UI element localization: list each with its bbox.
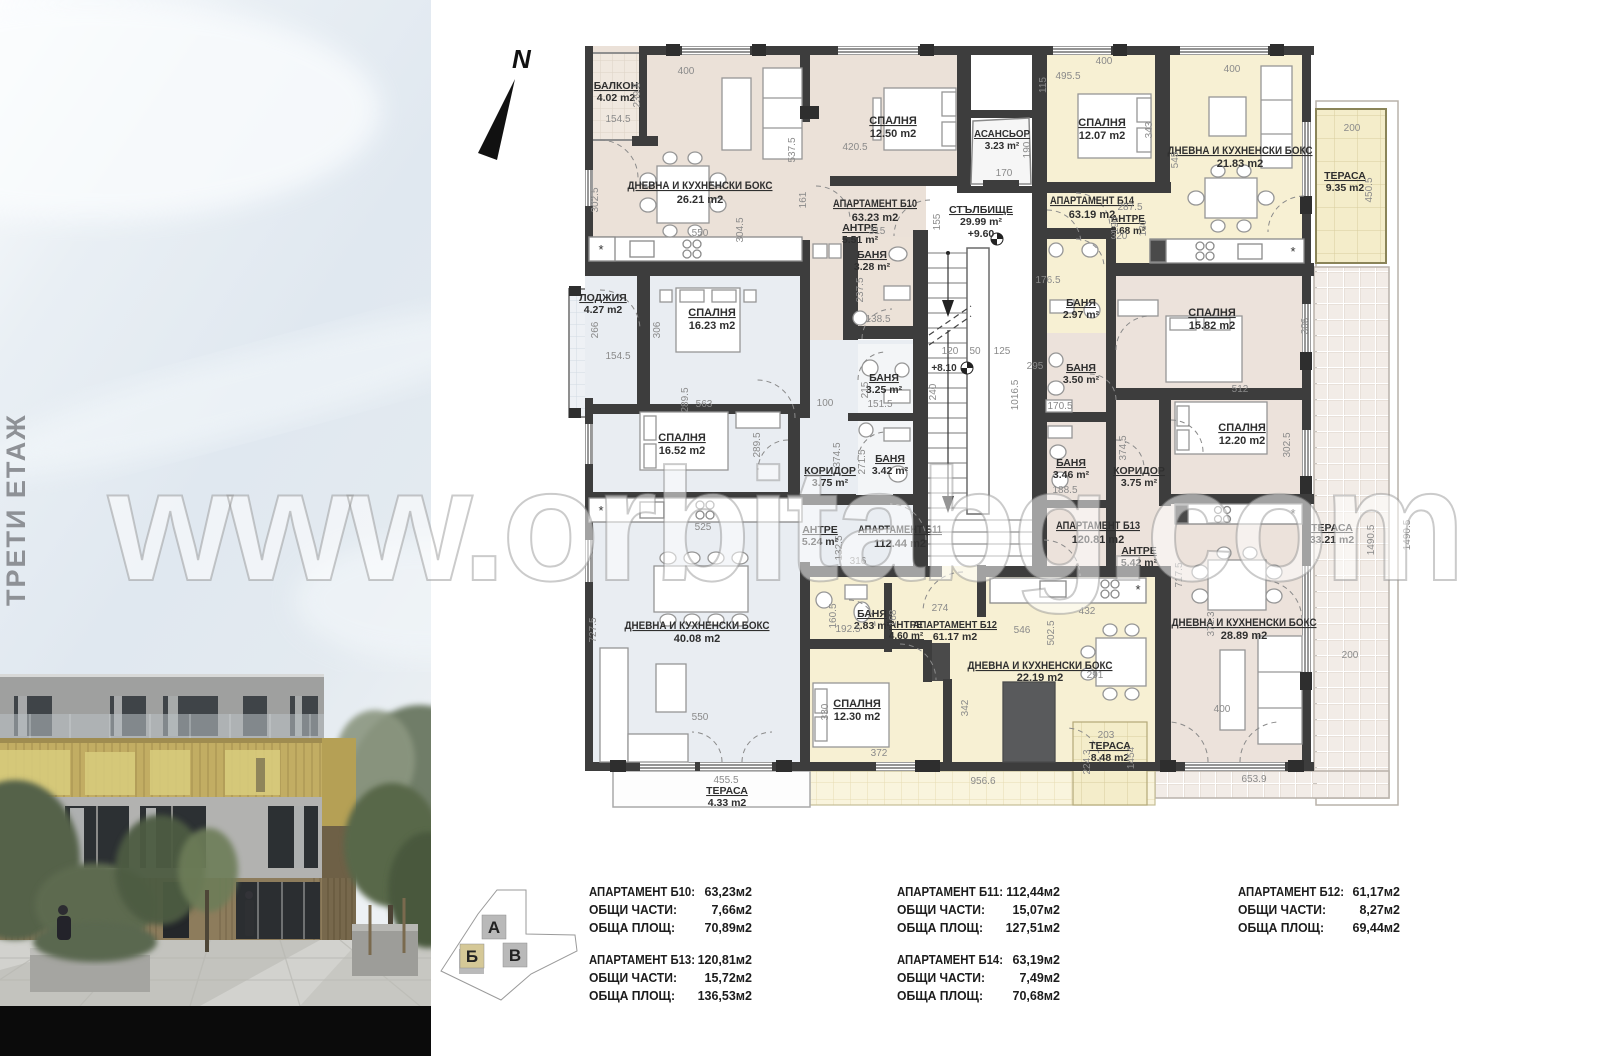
svg-text:138.5: 138.5 xyxy=(865,314,890,325)
svg-text:АПАРТАМЕНТ Б12: АПАРТАМЕНТ Б12 xyxy=(913,619,997,631)
svg-text:ОБЩА ПЛОЩ:: ОБЩА ПЛОЩ: xyxy=(589,921,675,935)
svg-text:136,53м2: 136,53м2 xyxy=(698,989,752,1003)
svg-text:50: 50 xyxy=(969,346,981,357)
svg-text:АСАНСЬОР: АСАНСЬОР xyxy=(974,129,1030,140)
svg-text:343: 343 xyxy=(1144,121,1155,138)
svg-text:400: 400 xyxy=(678,66,695,77)
svg-text:371.3: 371.3 xyxy=(1206,611,1217,636)
svg-text:203: 203 xyxy=(1098,730,1115,741)
svg-text:115: 115 xyxy=(1038,77,1049,93)
svg-text:330: 330 xyxy=(820,703,831,720)
svg-text:26.21 m2: 26.21 m2 xyxy=(677,194,723,206)
svg-text:12.30 m2: 12.30 m2 xyxy=(834,711,880,723)
svg-text:СПАЛНЯ: СПАЛНЯ xyxy=(1078,117,1126,129)
svg-text:239.5: 239.5 xyxy=(632,82,643,107)
svg-text:ОБЩИ ЧАСТИ:: ОБЩИ ЧАСТИ: xyxy=(589,971,677,985)
svg-text:ОБЩИ ЧАСТИ:: ОБЩИ ЧАСТИ: xyxy=(1238,903,1326,917)
svg-text:291: 291 xyxy=(1087,670,1104,681)
svg-text:727.5: 727.5 xyxy=(588,617,599,642)
svg-text:546: 546 xyxy=(1014,625,1031,636)
svg-text:*: * xyxy=(598,242,603,257)
svg-text:15,72м2: 15,72м2 xyxy=(705,971,753,985)
svg-text:342: 342 xyxy=(960,699,971,716)
svg-text:+9.60: +9.60 xyxy=(968,228,995,240)
svg-text:ОБЩИ ЧАСТИ:: ОБЩИ ЧАСТИ: xyxy=(589,903,677,917)
svg-text:ДНЕВНА И КУХНЕНСКИ БОКС: ДНЕВНА И КУХНЕНСКИ БОКС xyxy=(1168,145,1313,157)
svg-text:190: 190 xyxy=(1110,216,1121,233)
svg-text:15,07м2: 15,07м2 xyxy=(1013,903,1061,917)
svg-text:2.97 m²: 2.97 m² xyxy=(1063,309,1100,321)
svg-text:+8.10: +8.10 xyxy=(931,363,957,374)
svg-text:12.50 m2: 12.50 m2 xyxy=(870,128,916,140)
svg-text:502.5: 502.5 xyxy=(1046,620,1057,645)
svg-text:170.5: 170.5 xyxy=(1047,401,1072,412)
svg-text:4.27 m2: 4.27 m2 xyxy=(584,304,623,316)
svg-text:563: 563 xyxy=(696,399,713,410)
svg-text:306: 306 xyxy=(1300,317,1311,334)
svg-text:63.19 m2: 63.19 m2 xyxy=(1069,209,1115,221)
svg-text:302.5: 302.5 xyxy=(590,187,601,212)
svg-text:1016.5: 1016.5 xyxy=(1010,379,1021,410)
svg-text:АПАРТАМЕНТ Б14:: АПАРТАМЕНТ Б14: xyxy=(897,953,1003,967)
svg-text:304.5: 304.5 xyxy=(735,217,746,242)
svg-text:154.5: 154.5 xyxy=(605,114,630,125)
svg-text:БАНЯ: БАНЯ xyxy=(857,249,887,261)
svg-text:400: 400 xyxy=(1096,56,1113,67)
svg-text:ТРЕТИ ЕТАЖ: ТРЕТИ ЕТАЖ xyxy=(1,413,31,606)
svg-text:161: 161 xyxy=(798,191,809,208)
svg-text:АПАРТАМЕНТ Б11:: АПАРТАМЕНТ Б11: xyxy=(897,885,1003,899)
svg-text:295: 295 xyxy=(1027,361,1044,372)
svg-text:266: 266 xyxy=(590,321,601,338)
svg-text:545: 545 xyxy=(1170,151,1181,168)
svg-text:956.6: 956.6 xyxy=(970,776,995,787)
svg-text:455.5: 455.5 xyxy=(713,775,738,786)
svg-text:ДНЕВНА И КУХНЕНСКИ БОКС: ДНЕВНА И КУХНЕНСКИ БОКС xyxy=(625,620,770,632)
svg-text:СТЪЛБИЩЕ: СТЪЛБИЩЕ xyxy=(949,204,1013,216)
svg-text:237.5: 237.5 xyxy=(855,277,866,302)
svg-text:100: 100 xyxy=(817,398,834,409)
svg-text:ОБЩА ПЛОЩ:: ОБЩА ПЛОЩ: xyxy=(589,989,675,1003)
svg-text:3.25 m²: 3.25 m² xyxy=(866,384,903,396)
svg-text:151.5: 151.5 xyxy=(867,399,892,410)
svg-text:АПАРТАМЕНТ Б10:: АПАРТАМЕНТ Б10: xyxy=(589,885,695,899)
svg-text:16.23 m2: 16.23 m2 xyxy=(689,320,735,332)
svg-text:СПАЛНЯ: СПАЛНЯ xyxy=(869,115,917,127)
svg-text:224.3: 224.3 xyxy=(1082,749,1093,774)
svg-text:БАНЯ: БАНЯ xyxy=(1066,362,1096,374)
svg-text:240: 240 xyxy=(928,383,939,400)
svg-text:ТЕРАСА: ТЕРАСА xyxy=(1324,170,1366,182)
svg-text:190: 190 xyxy=(1022,141,1033,158)
svg-text:61,17м2: 61,17м2 xyxy=(1353,885,1401,899)
svg-text:ДНЕВНА И КУХНЕНСКИ БОКС: ДНЕВНА И КУХНЕНСКИ БОКС xyxy=(628,180,773,192)
svg-text:537.5: 537.5 xyxy=(787,137,798,162)
svg-text:400: 400 xyxy=(1214,704,1231,715)
svg-text:155: 155 xyxy=(932,213,943,230)
svg-text:ОБЩА ПЛОЩ:: ОБЩА ПЛОЩ: xyxy=(897,989,983,1003)
svg-text:63,19м2: 63,19м2 xyxy=(1013,953,1061,967)
svg-text:120,81м2: 120,81м2 xyxy=(698,953,752,967)
svg-text:22.19 m2: 22.19 m2 xyxy=(1017,672,1063,684)
svg-text:200: 200 xyxy=(1342,650,1359,661)
svg-text:ОБЩИ ЧАСТИ:: ОБЩИ ЧАСТИ: xyxy=(897,903,985,917)
svg-text:Б: Б xyxy=(466,947,478,966)
svg-text:ТЕРАСА: ТЕРАСА xyxy=(1089,740,1131,752)
svg-text:400: 400 xyxy=(1224,64,1241,75)
svg-text:653.9: 653.9 xyxy=(1241,774,1266,785)
svg-text:7,66м2: 7,66м2 xyxy=(711,903,752,917)
svg-text:170: 170 xyxy=(996,168,1013,179)
svg-text:120: 120 xyxy=(942,346,959,357)
svg-text:130: 130 xyxy=(1138,219,1149,236)
svg-text:3.50 m²: 3.50 m² xyxy=(1063,374,1100,386)
svg-text:4.60 m²: 4.60 m² xyxy=(889,631,924,642)
svg-text:ОБЩИ ЧАСТИ:: ОБЩИ ЧАСТИ: xyxy=(897,971,985,985)
svg-text:69,44м2: 69,44м2 xyxy=(1353,921,1401,935)
svg-text:12.07 m2: 12.07 m2 xyxy=(1079,130,1125,142)
svg-text:ЛОДЖИЯ: ЛОДЖИЯ xyxy=(579,292,626,304)
svg-text:70,68м2: 70,68м2 xyxy=(1013,989,1061,1003)
svg-text:ОБЩА ПЛОЩ:: ОБЩА ПЛОЩ: xyxy=(1238,921,1324,935)
svg-text:СПАЛНЯ: СПАЛНЯ xyxy=(833,698,881,710)
svg-text:450.5: 450.5 xyxy=(1364,177,1375,202)
svg-text:8,27м2: 8,27м2 xyxy=(1359,903,1400,917)
svg-text:АПАРТАМЕНТ Б13:: АПАРТАМЕНТ Б13: xyxy=(589,953,695,967)
svg-text:ОБЩА ПЛОЩ:: ОБЩА ПЛОЩ: xyxy=(897,921,983,935)
svg-text:28.89 m2: 28.89 m2 xyxy=(1221,630,1267,642)
svg-text:372: 372 xyxy=(871,748,888,759)
svg-text:N: N xyxy=(512,44,532,74)
svg-text:СПАЛНЯ: СПАЛНЯ xyxy=(688,307,736,319)
svg-text:192.5: 192.5 xyxy=(835,624,860,635)
svg-text:550: 550 xyxy=(692,712,709,723)
svg-text:315: 315 xyxy=(869,226,886,237)
svg-text:420.5: 420.5 xyxy=(842,142,867,153)
svg-text:1454: 1454 xyxy=(1126,746,1137,769)
svg-text:ДНЕВНА И КУХНЕНСКИ БОКС: ДНЕВНА И КУХНЕНСКИ БОКС xyxy=(1172,617,1317,629)
svg-text:БАНЯ: БАНЯ xyxy=(869,372,899,384)
svg-text:3.23 m²: 3.23 m² xyxy=(985,141,1020,152)
svg-text:287.5: 287.5 xyxy=(1117,202,1142,213)
svg-text:289.5: 289.5 xyxy=(680,387,691,412)
svg-text:127,51м2: 127,51м2 xyxy=(1006,921,1060,935)
svg-text:В: В xyxy=(509,946,521,965)
svg-text:215: 215 xyxy=(860,381,871,398)
svg-text:512: 512 xyxy=(1232,384,1249,395)
svg-text:3.28 m²: 3.28 m² xyxy=(854,261,891,273)
svg-text:7,49м2: 7,49м2 xyxy=(1019,971,1060,985)
svg-text:61.17 m2: 61.17 m2 xyxy=(933,631,978,643)
svg-text:4.02 m2: 4.02 m2 xyxy=(597,92,636,104)
svg-text:125: 125 xyxy=(994,346,1011,357)
svg-text:200: 200 xyxy=(1344,123,1361,134)
svg-text:БАНЯ: БАНЯ xyxy=(1066,297,1096,309)
svg-text:www.orbitabg.com: www.orbitabg.com xyxy=(107,435,1461,614)
svg-text:9.35 m2: 9.35 m2 xyxy=(1326,182,1365,194)
svg-text:29.99 m²: 29.99 m² xyxy=(960,216,1003,228)
svg-text:СПАЛНЯ: СПАЛНЯ xyxy=(1218,422,1266,434)
svg-text:АПАРТАМЕНТ Б12:: АПАРТАМЕНТ Б12: xyxy=(1238,885,1344,899)
svg-text:40.08 m2: 40.08 m2 xyxy=(674,633,720,645)
svg-text:154.5: 154.5 xyxy=(605,351,630,362)
svg-text:21.83 m2: 21.83 m2 xyxy=(1217,158,1263,170)
svg-text:4.33 m2: 4.33 m2 xyxy=(708,797,747,809)
svg-text:63,23м2: 63,23м2 xyxy=(705,885,753,899)
svg-text:ТЕРАСА: ТЕРАСА xyxy=(706,785,748,797)
svg-text:*: * xyxy=(1290,244,1295,259)
svg-text:АПАРТАМЕНТ Б10: АПАРТАМЕНТ Б10 xyxy=(833,198,917,210)
svg-text:176.5: 176.5 xyxy=(1035,275,1060,286)
svg-text:495.5: 495.5 xyxy=(1055,71,1080,82)
svg-text:А: А xyxy=(488,918,500,937)
svg-text:112,44м2: 112,44м2 xyxy=(1006,885,1060,899)
svg-text:8.48 m2: 8.48 m2 xyxy=(1091,752,1130,764)
svg-text:70,89м2: 70,89м2 xyxy=(705,921,753,935)
svg-text:550: 550 xyxy=(692,228,709,239)
svg-text:15.82 m2: 15.82 m2 xyxy=(1189,320,1235,332)
svg-text:306: 306 xyxy=(652,321,663,338)
svg-text:СПАЛНЯ: СПАЛНЯ xyxy=(1188,307,1236,319)
